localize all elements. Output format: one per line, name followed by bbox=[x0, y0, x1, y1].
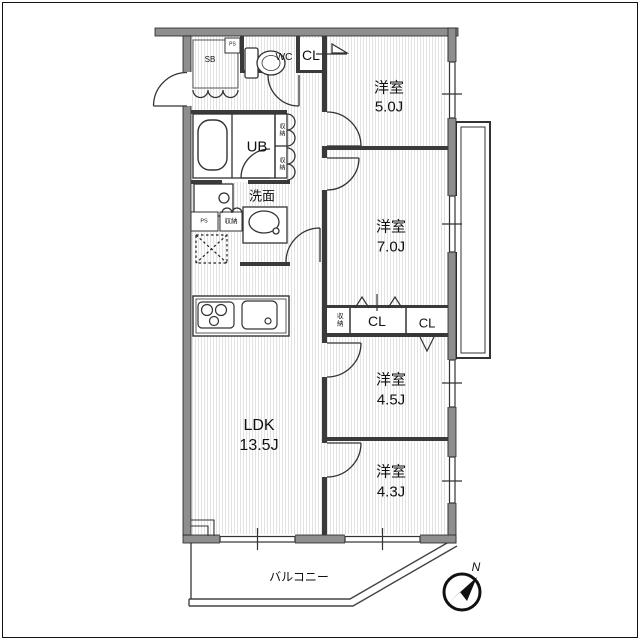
bathtub-icon bbox=[198, 120, 227, 170]
floorplan-drawing bbox=[0, 0, 640, 640]
floorplan-page: 洋室 5.0J 洋室 7.0J 洋室 4.5J 洋室 4.3J LDK 13.5… bbox=[0, 0, 640, 640]
storage-wash-label: 収納 bbox=[225, 219, 238, 226]
ldk-size: 13.5J bbox=[239, 438, 278, 454]
unit-bath-label: UB bbox=[247, 140, 268, 155]
bedroom3-size: 4.5J bbox=[377, 393, 405, 408]
compass-north-label: N bbox=[472, 561, 481, 573]
closet1-label: CL bbox=[368, 314, 386, 328]
bedroom2-label: 洋室 bbox=[376, 220, 406, 235]
side-balcony bbox=[456, 122, 490, 358]
bedroom3-label: 洋室 bbox=[376, 373, 406, 388]
bedroom1-size: 5.0J bbox=[375, 100, 403, 115]
closet-top-label: CL bbox=[302, 48, 320, 62]
bedroom2-size: 7.0J bbox=[377, 240, 405, 255]
storage1-label: 収納 bbox=[278, 123, 284, 137]
entrance-door-arc bbox=[154, 73, 188, 107]
balcony-label: バルコニー bbox=[269, 571, 329, 583]
pipe-space-wash-label: PS bbox=[200, 219, 207, 225]
closet2-label: CL bbox=[419, 317, 436, 330]
shoe-box-label: SB bbox=[205, 56, 216, 64]
wc-label: WC bbox=[276, 53, 293, 63]
storage2-label: 収納 bbox=[278, 157, 284, 171]
compass-icon bbox=[444, 574, 480, 610]
washroom-label: 洗面 bbox=[249, 190, 275, 203]
washer-pan-icon bbox=[194, 184, 233, 216]
kitchen-sink-icon bbox=[242, 301, 277, 329]
bedroom4-label: 洋室 bbox=[376, 465, 406, 480]
bedroom4-size: 4.3J bbox=[377, 485, 405, 500]
washbasin-icon bbox=[243, 207, 287, 243]
stove-icon bbox=[198, 302, 234, 328]
storage3-label: 収納 bbox=[335, 313, 342, 328]
ldk-label: LDK bbox=[243, 418, 274, 434]
bedroom1-label: 洋室 bbox=[374, 81, 404, 96]
pipe-space-entry-label: PS bbox=[229, 43, 236, 48]
